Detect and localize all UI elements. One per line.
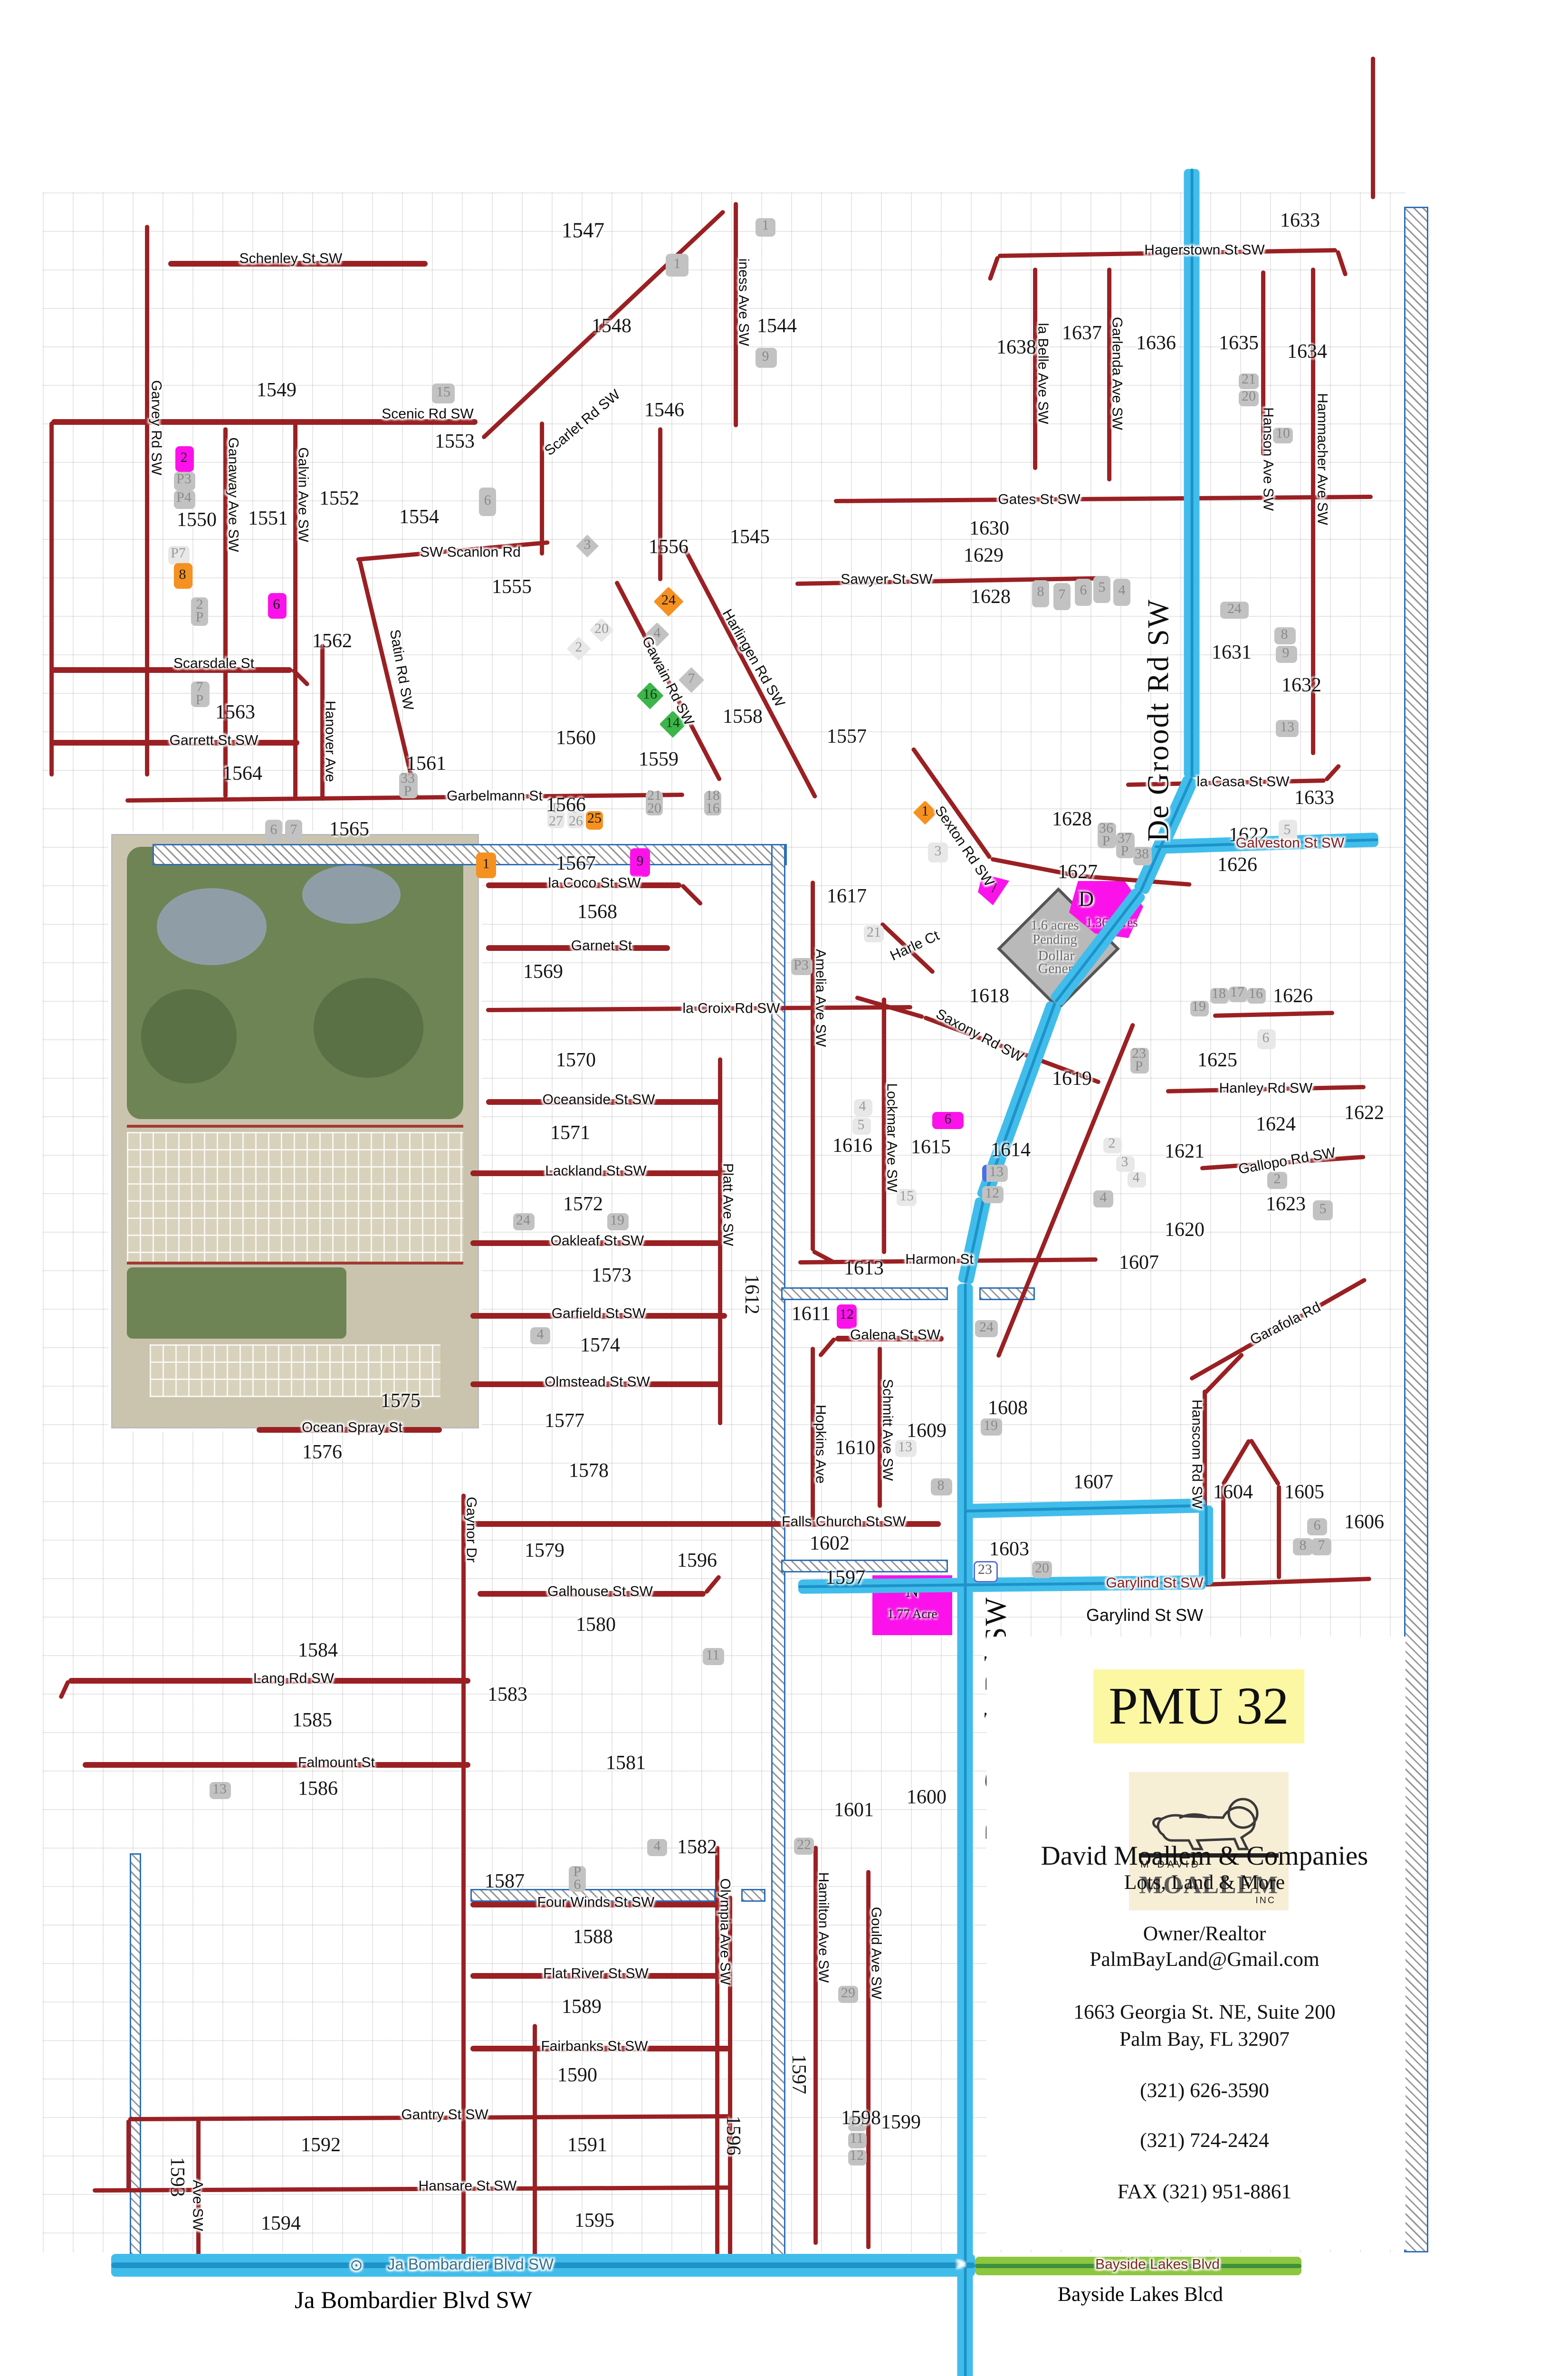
street-label: Hopkins Ave	[812, 1405, 828, 1484]
lot-marker: 20	[1032, 1561, 1052, 1578]
street-label: la Croix Rd SW	[682, 1002, 780, 1017]
hatch-strip	[153, 844, 787, 865]
street-label: Fairbanks St SW	[541, 2040, 648, 2055]
lot-marker: 6	[1307, 1518, 1327, 1535]
lot-marker: 6	[1257, 1029, 1275, 1049]
area-number: 1619	[1052, 1069, 1092, 1092]
city-state-zip: Palm Bay, FL 32907	[1005, 2029, 1404, 2053]
lot-marker: 4	[853, 1099, 872, 1116]
area-number: 1589	[562, 1997, 602, 2020]
road-segment	[1190, 168, 1193, 777]
street-label: Oakleaf St SW	[551, 1234, 644, 1250]
bayside-lakes-caption: Bayside Lakes Blcd	[998, 2284, 1283, 2308]
area-number: 1610	[835, 1438, 875, 1461]
lot-marker: P 6	[569, 1866, 586, 1892]
street-label: Galvin Ave SW	[295, 447, 310, 542]
hatch-strip	[741, 1889, 765, 1902]
area-number: 1551	[248, 509, 288, 532]
street-label: >	[956, 2258, 965, 2273]
area-number: 1546	[644, 401, 684, 423]
road-segment	[1276, 1485, 1281, 1580]
lot-marker: 19	[1190, 1000, 1208, 1016]
area-number: 1554	[399, 508, 439, 530]
area-number: 1549	[257, 381, 296, 403]
street-label: Scenic Rd SW	[382, 407, 473, 423]
road-segment	[83, 1763, 470, 1767]
area-number: 1608	[988, 1399, 1028, 1421]
lot-marker: 7 P	[191, 681, 209, 707]
lot-marker: 20	[1239, 390, 1259, 406]
street-label: Flat River St SW	[543, 1967, 649, 1983]
lot-marker: 6	[479, 488, 496, 516]
area-number: 1547	[562, 220, 604, 245]
lot-marker: 4	[530, 1327, 550, 1344]
inset-pond	[302, 865, 401, 924]
area-number: 1637	[1062, 324, 1102, 346]
street-label: Hanover Ave	[322, 700, 337, 782]
lot-marker: 24	[1220, 602, 1249, 619]
street-label: Lockmar Ave SW	[883, 1083, 899, 1192]
area-number: 1623	[1266, 1195, 1306, 1217]
area-number: 1595	[574, 2211, 614, 2234]
lot-marker: 10	[1273, 427, 1293, 443]
area-number: 1588	[573, 1927, 613, 1950]
inset-vegetation	[142, 989, 237, 1084]
area-number: 1626	[1273, 987, 1313, 1009]
area-number: 1631	[1212, 643, 1252, 666]
street-label: Amelia Ave SW	[812, 949, 828, 1047]
lot-marker: 21	[1239, 373, 1259, 389]
area-number: 1598	[841, 2108, 881, 2131]
area-number: 1634	[1287, 342, 1327, 365]
area-number: 1629	[964, 546, 1004, 569]
street-label: Schenley St SW	[239, 252, 343, 268]
area-number: 1638	[996, 338, 1036, 361]
lot-marker: 2	[175, 446, 193, 472]
area-number: 1622	[1344, 1103, 1384, 1126]
inset-vegetation	[313, 977, 422, 1078]
lot-marker: 8	[173, 563, 192, 589]
inset-boundary	[127, 1125, 463, 1128]
area-number: 1582	[677, 1838, 717, 1860]
area-number: 1593	[164, 2157, 187, 2197]
road-segment	[126, 2120, 131, 2191]
area-number: 1584	[298, 1641, 338, 1664]
street-label: Schmitt Ave SW	[879, 1379, 895, 1481]
lot-marker: 15	[897, 1189, 917, 1206]
lot-marker: 2	[1267, 1172, 1287, 1189]
area-number: 1605	[1284, 1483, 1324, 1505]
lot-marker: 22	[794, 1838, 814, 1855]
street-label: Hagerstown St SW	[1144, 243, 1264, 259]
lot-marker: 5	[1093, 575, 1110, 603]
lot-marker: 36 P	[1097, 823, 1116, 848]
lot-marker: 24	[975, 1320, 998, 1337]
street-label: Harmon St	[905, 1253, 973, 1268]
area-number: 1618	[969, 987, 1009, 1009]
area-number: 1563	[215, 703, 255, 726]
lot-marker: 18 16	[704, 791, 721, 815]
area-number: 1596	[677, 1551, 717, 1574]
area-number: 1630	[969, 519, 1009, 542]
lot-marker: 23	[973, 1561, 997, 1582]
street-label: Hanscom Rd SW	[1188, 1399, 1204, 1509]
road-segment	[49, 422, 54, 777]
hatch-strip	[1404, 207, 1428, 2252]
lot-marker: 5	[1313, 1200, 1333, 1220]
street-label: Falmount St	[298, 1756, 375, 1772]
inset-fields	[149, 1344, 441, 1398]
area-number: 1564	[222, 764, 262, 787]
area-number: 1615	[911, 1138, 951, 1160]
lot-marker: 6	[265, 820, 282, 843]
area-number: 1561	[406, 754, 446, 777]
street-label: Olympia Ave SW	[717, 1878, 732, 1985]
lot-marker: 23 P	[1130, 1048, 1148, 1073]
inset-pond	[156, 889, 266, 966]
area-number: 1627	[1058, 862, 1098, 885]
street-label: Garrett St SW	[170, 734, 258, 749]
street-label: la Casa St SW	[1196, 775, 1289, 791]
lot-marker: 13	[982, 1165, 1007, 1182]
area-number: 1585	[292, 1711, 332, 1734]
area-number: 1572	[563, 1195, 603, 1217]
inset-vegetation	[127, 1267, 346, 1338]
area-number: 1566	[546, 795, 586, 818]
street-label: Falls Church St SW	[782, 1515, 906, 1531]
street-label: Scarsdale St	[173, 657, 254, 672]
street-label: Garylind St SW	[1086, 1605, 1203, 1625]
lot-marker: 4	[1127, 1171, 1146, 1187]
area-number: 1583	[488, 1685, 527, 1708]
area-number: 1586	[298, 1779, 338, 1802]
road-segment	[51, 668, 292, 672]
street-label: Garbelmann St	[447, 789, 543, 805]
email-address: PalmBayLand@Gmail.com	[1005, 1949, 1404, 1973]
lot-marker: 12	[837, 1304, 857, 1328]
lot-marker: 9	[1275, 646, 1297, 663]
area-number: 1624	[1256, 1115, 1296, 1138]
area-number: 1552	[319, 489, 359, 512]
lot-marker: 24	[513, 1213, 534, 1230]
area-number: 1625	[1197, 1051, 1237, 1073]
lot-marker: 7	[1053, 583, 1071, 610]
hatch-strip	[130, 1853, 141, 2255]
area-number: 1632	[1281, 676, 1321, 699]
area-number: 1545	[730, 527, 770, 550]
lot-marker: 8	[1293, 1538, 1313, 1555]
area-number: 1620	[1165, 1220, 1205, 1243]
area-number: 1597	[825, 1568, 865, 1591]
area-number: 1581	[606, 1753, 646, 1776]
area-number: 1568	[577, 902, 617, 925]
area-number: 1603	[989, 1540, 1029, 1562]
fax-number: FAX (321) 951-8861	[1005, 2181, 1404, 2205]
company-tagline: Lots, Land & More	[1005, 1872, 1404, 1896]
street-label: Hansare St SW	[419, 2179, 517, 2195]
lot-marker: 3	[928, 843, 948, 862]
road-segment	[1204, 1505, 1207, 1585]
lot-marker: P3	[173, 471, 195, 490]
lot-marker: 6	[932, 1112, 964, 1129]
street-label: SW Scanlon Rd	[420, 546, 521, 561]
lot-marker: 12	[982, 1186, 1003, 1203]
area-number: 1575	[381, 1391, 421, 1414]
lot-marker: 15	[432, 383, 455, 403]
area-number: 1548	[592, 316, 631, 339]
area-number: 1606	[1344, 1513, 1384, 1535]
area-number: 1601	[834, 1801, 874, 1823]
area-number: 1556	[649, 537, 688, 560]
company-name: David Moallem & Companies	[1005, 1842, 1404, 1873]
area-number: 1612	[738, 1274, 761, 1314]
street-label: Ave SW	[189, 2180, 205, 2231]
area-number: 1558	[723, 707, 763, 730]
street-label: Galveston St SW	[1236, 836, 1344, 852]
street-label: Lackland St SW	[545, 1164, 646, 1180]
lot-marker: 7	[1311, 1538, 1331, 1555]
dollar-general-size: 1.6 acres	[1031, 920, 1079, 934]
street-label: Hanson Ave SW	[1260, 407, 1275, 511]
area-number: 1607	[1119, 1253, 1159, 1276]
inset-boundary	[127, 1261, 463, 1264]
street-label: Garlenda Ave SW	[1109, 317, 1124, 430]
owner-role: Owner/Realtor	[1005, 1923, 1404, 1947]
d-lot-label: D	[1079, 889, 1094, 913]
street-label: Garnet St	[571, 939, 632, 955]
lot-marker: 6	[1075, 578, 1092, 605]
lot-marker: 1	[476, 853, 496, 878]
area-number: 1574	[580, 1336, 620, 1359]
area-number: 1628	[1052, 810, 1092, 833]
area-number: 1602	[810, 1534, 850, 1557]
street-label: Gaynor Dr	[463, 1497, 478, 1562]
road-segment	[539, 422, 544, 556]
area-number: 1580	[576, 1615, 616, 1638]
area-number: 1576	[302, 1443, 342, 1466]
lot-marker: 18	[1210, 987, 1228, 1003]
lot-marker: 3	[1116, 1156, 1134, 1171]
ja-bombardier-caption: Ja Bombardier Blvd SW	[200, 2287, 627, 2315]
lot-marker: 21	[864, 925, 884, 942]
hatch-strip	[781, 1287, 948, 1300]
lot-marker: 2	[1103, 1137, 1121, 1153]
area-number: 1559	[639, 750, 679, 773]
plat-inset-image	[111, 834, 479, 1428]
lot-marker: 16	[1247, 987, 1265, 1003]
area-number: 1617	[827, 887, 867, 910]
lot-marker: P3	[791, 958, 812, 975]
street-label: Lang Rd SW	[253, 1672, 334, 1687]
lot-marker: 37 P	[1116, 833, 1134, 858]
area-number: 1590	[557, 2066, 597, 2089]
plat-map-page: 1.6 acres Pending Dollar General D 1.36 …	[0, 0, 1568, 2376]
street-label: Ocean Spray St	[302, 1421, 402, 1437]
lot-marker: 8	[930, 1478, 952, 1495]
area-number: 1570	[556, 1051, 596, 1073]
street-label: Galhouse St SW	[547, 1585, 653, 1600]
lot-marker: 13	[1276, 720, 1299, 737]
street-label: Four Winds St SW	[537, 1896, 655, 1911]
road-segment	[810, 881, 815, 1252]
street-label: Garfield St SW	[552, 1307, 646, 1322]
lot-marker: 4	[647, 1839, 667, 1856]
lot-marker: 11	[848, 2132, 866, 2148]
street-label: Hanley Rd SW	[1219, 1082, 1313, 1097]
road-segment	[461, 1494, 466, 2255]
area-number: 1555	[492, 577, 532, 600]
area-number: 1626	[1217, 855, 1257, 878]
area-number: 1562	[312, 632, 352, 654]
area-number: 1616	[832, 1136, 872, 1159]
road-segment	[963, 1283, 966, 2376]
lot-marker: 13	[209, 1782, 230, 1799]
area-number: 1597	[785, 2054, 808, 2094]
area-number: 1592	[301, 2136, 341, 2158]
area-number: 1565	[329, 820, 369, 843]
lot-marker: 38	[1133, 846, 1151, 865]
lot-marker: 21 20	[646, 791, 663, 815]
lot-marker: 29	[838, 1986, 858, 2003]
street-address: 1663 Georgia St. NE, Suite 200	[1005, 2002, 1404, 2026]
road-segment	[532, 2024, 537, 2267]
n-lot-size: 1.77 Acre	[888, 1607, 937, 1621]
area-number: 1636	[1136, 334, 1176, 356]
street-label: iness Ave SW	[735, 259, 751, 346]
lot-marker: 25	[586, 811, 603, 829]
lot-marker: 2 P	[191, 597, 208, 626]
street-label: Garvey Rd SW	[148, 380, 163, 475]
street-label: Gould Ave SW	[868, 1907, 883, 2000]
lot-marker: 4	[1093, 1190, 1113, 1207]
area-number: 1578	[569, 1461, 609, 1484]
area-number: 1577	[545, 1411, 584, 1434]
area-number: 1600	[907, 1788, 947, 1811]
street-label: Ja Bombardier Blvd SW	[387, 2257, 554, 2274]
area-number: 1607	[1073, 1473, 1113, 1495]
area-number: 1628	[971, 587, 1011, 610]
lot-marker: 9	[755, 348, 776, 368]
lot-marker: 8	[1274, 627, 1295, 644]
street-label: la Coco St SW	[548, 876, 641, 892]
area-number: 1567	[556, 854, 596, 877]
lot-marker: 4	[1113, 578, 1130, 605]
area-number: 1594	[261, 2214, 301, 2237]
area-number: 1569	[523, 962, 563, 985]
phone-number-1: (321) 626-3590	[1005, 2080, 1404, 2104]
street-label: Ganaway Ave SW	[225, 437, 240, 552]
lot-marker: 8	[1032, 580, 1049, 607]
area-number: 1557	[827, 727, 867, 750]
street-label: Sawyer St SW	[841, 573, 932, 588]
area-number: 1633	[1294, 788, 1334, 811]
road-segment	[144, 225, 149, 777]
street-label: la Belle Ave SW	[1034, 323, 1050, 424]
road-segment	[1370, 57, 1375, 200]
street-label: Gantry St SW	[401, 2108, 488, 2124]
street-label: Gates St SW	[998, 493, 1080, 508]
area-number: 1611	[792, 1304, 831, 1327]
area-number: 1591	[567, 2136, 607, 2158]
area-number: 1571	[550, 1123, 590, 1146]
street-label: Olmstead St SW	[545, 1375, 650, 1391]
logo-inc: INC	[1255, 1896, 1276, 1906]
lot-marker: 12	[848, 2149, 866, 2165]
lot-marker: 19	[607, 1213, 628, 1230]
area-number: 1579	[525, 1541, 564, 1564]
inset-fields	[127, 1131, 463, 1262]
lot-marker: 1	[755, 218, 775, 236]
lot-marker: 6	[268, 593, 286, 619]
street-label: Hamilton Ave SW	[815, 1872, 831, 1983]
lot-marker: 17	[1228, 986, 1247, 1002]
area-number: 1613	[844, 1259, 884, 1282]
phone-number-2: (321) 724-2424	[1005, 2130, 1404, 2154]
hatch-strip	[771, 844, 785, 2255]
dollar-general-status: Pending	[1033, 934, 1077, 948]
area-number: 1553	[435, 432, 475, 455]
street-label: Oceanside St SW	[543, 1093, 655, 1109]
pmu-badge: PMU 32	[1093, 1669, 1304, 1744]
street-label: Galena St SW	[850, 1328, 940, 1344]
area-number: 1560	[556, 728, 596, 751]
area-number: 1587	[485, 1872, 525, 1895]
street-label: Platt Ave SW	[719, 1163, 735, 1246]
lot-marker: 1	[666, 254, 688, 277]
lot-marker: 11	[702, 1648, 724, 1665]
lot-marker: 7	[285, 820, 302, 843]
lot-marker: 9	[630, 848, 650, 877]
area-number: 1604	[1213, 1483, 1253, 1505]
street-label: Bayside Lakes Blvd	[1095, 2258, 1220, 2273]
area-number: 1635	[1219, 334, 1259, 356]
area-number: 1621	[1165, 1142, 1205, 1165]
area-number: 1544	[757, 316, 797, 339]
area-number: 1633	[1280, 211, 1320, 234]
area-number: 1614	[991, 1140, 1031, 1163]
area-number: 1609	[907, 1421, 947, 1444]
street-label: De Groodt Rd SW	[1141, 598, 1177, 842]
area-number: 1599	[881, 2113, 921, 2136]
street-label: ⊙	[350, 2256, 363, 2275]
area-number: 1550	[177, 510, 217, 533]
lot-marker: P7	[168, 546, 189, 564]
lot-marker: 5	[852, 1118, 870, 1135]
street-label: Garylind St SW	[1106, 1576, 1203, 1592]
area-number: 1596	[720, 2116, 743, 2156]
area-number: 1573	[592, 1266, 631, 1289]
street-label: Hammacher Ave SW	[1314, 393, 1329, 525]
lot-marker: P4	[173, 490, 195, 508]
